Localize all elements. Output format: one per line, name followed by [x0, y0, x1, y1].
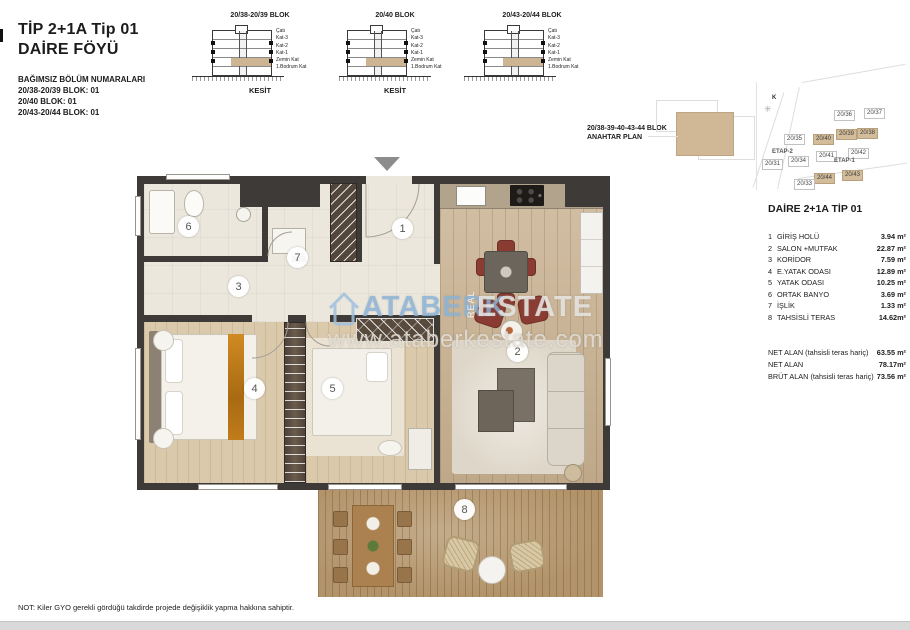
room-number-4: 4 — [244, 378, 265, 399]
house-logo-icon — [324, 288, 364, 330]
room-number-8: 8 — [454, 499, 475, 520]
watermark-brand-estate: ESTATE — [477, 292, 593, 322]
room-number-6: 6 — [178, 216, 199, 237]
room-number-3: 3 — [228, 276, 249, 297]
floor-plan: 1 2 3 4 5 6 7 8 ATABERK REAL ESTATE www.… — [0, 0, 910, 630]
watermark-real-label: REAL — [466, 290, 476, 318]
room-number-7: 7 — [287, 247, 308, 268]
room-number-5: 5 — [322, 378, 343, 399]
daire-foyu-page: TİP 2+1A Tip 01 DAİRE FÖYÜ BAĞIMSIZ BÖLÜ… — [0, 0, 910, 630]
room-number-1: 1 — [392, 218, 413, 239]
watermark-url: www.ataberkestate.com — [328, 326, 604, 354]
